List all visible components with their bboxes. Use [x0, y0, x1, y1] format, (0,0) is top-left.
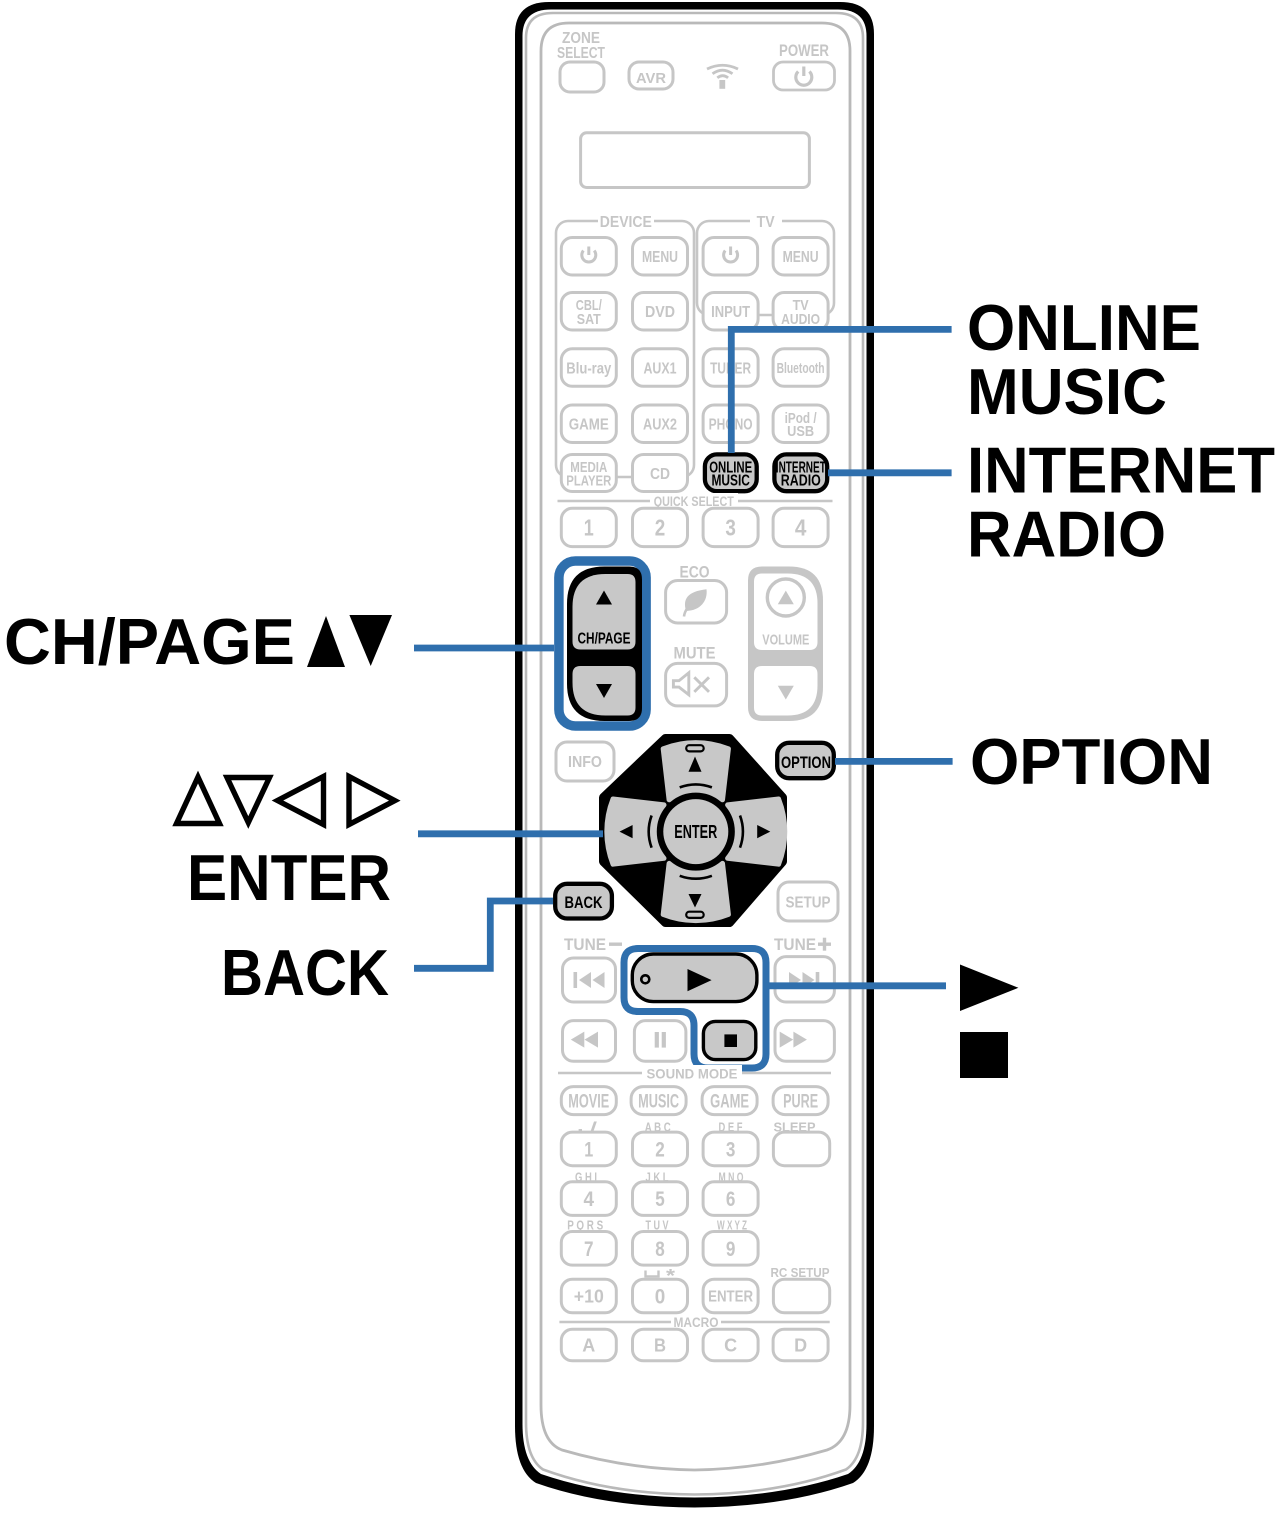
svg-text:0: 0 — [655, 1286, 666, 1309]
svg-text:+10: +10 — [574, 1287, 604, 1307]
svg-text:AUX2: AUX2 — [643, 417, 677, 434]
svg-text:ECO: ECO — [680, 563, 710, 582]
svg-text:SOUND MODE: SOUND MODE — [647, 1067, 738, 1082]
svg-text:CH/PAGE: CH/PAGE — [578, 630, 631, 647]
svg-text:TUNE: TUNE — [774, 935, 816, 954]
svg-text:8: 8 — [655, 1238, 665, 1261]
svg-text:QUICK SELECT: QUICK SELECT — [654, 494, 735, 509]
svg-text:3: 3 — [725, 515, 736, 541]
svg-text:MUSIC: MUSIC — [967, 356, 1167, 428]
svg-text:CD: CD — [650, 466, 670, 483]
svg-text:RADIO: RADIO — [967, 499, 1166, 571]
svg-text:3: 3 — [726, 1139, 736, 1162]
svg-text:POWER: POWER — [779, 41, 829, 60]
svg-text:B: B — [654, 1336, 666, 1356]
svg-text:MUTE: MUTE — [674, 644, 716, 663]
svg-text:RADIO: RADIO — [781, 473, 821, 490]
svg-text:C: C — [724, 1336, 737, 1356]
svg-text:SETUP: SETUP — [786, 895, 831, 912]
svg-text:TUNE: TUNE — [564, 935, 606, 954]
svg-text:MUSIC: MUSIC — [638, 1091, 679, 1112]
svg-text:INTERNET: INTERNET — [967, 435, 1275, 507]
svg-text:CH/PAGE: CH/PAGE — [4, 606, 295, 678]
svg-text:9: 9 — [726, 1238, 736, 1261]
svg-text:1: 1 — [584, 515, 594, 541]
svg-text:SAT: SAT — [577, 311, 601, 328]
svg-text:Bluetooth: Bluetooth — [777, 361, 825, 377]
svg-text:4: 4 — [795, 515, 807, 541]
svg-text:OPTION: OPTION — [970, 726, 1213, 798]
svg-text:ENTER: ENTER — [708, 1289, 753, 1306]
svg-text:BACK: BACK — [221, 937, 389, 1009]
svg-text:DEVICE: DEVICE — [600, 214, 652, 231]
svg-text:MENU: MENU — [642, 249, 678, 266]
svg-text:BACK: BACK — [565, 893, 604, 912]
svg-text:7: 7 — [584, 1238, 594, 1261]
svg-text:MACRO: MACRO — [674, 1315, 719, 1330]
svg-text:2: 2 — [655, 515, 666, 541]
svg-text:MOVIE: MOVIE — [568, 1091, 609, 1112]
svg-text:USB: USB — [787, 423, 814, 440]
svg-text:VOLUME: VOLUME — [762, 631, 809, 648]
svg-text:MUSIC: MUSIC — [711, 473, 750, 490]
svg-text:INPUT: INPUT — [711, 304, 750, 321]
svg-text:INFO: INFO — [568, 754, 602, 771]
svg-text:2: 2 — [655, 1139, 665, 1162]
svg-text:AVR: AVR — [636, 70, 666, 87]
svg-text:6: 6 — [726, 1188, 736, 1211]
svg-text:5: 5 — [655, 1188, 665, 1211]
svg-text:D: D — [794, 1336, 807, 1356]
svg-text:AUDIO: AUDIO — [781, 311, 820, 328]
svg-text:Blu-ray: Blu-ray — [566, 360, 611, 377]
svg-text:PLAYER: PLAYER — [566, 473, 611, 490]
svg-text:ENTER: ENTER — [187, 842, 391, 914]
svg-text:SELECT: SELECT — [557, 45, 605, 62]
svg-text:4: 4 — [584, 1188, 595, 1211]
svg-text:MENU: MENU — [783, 249, 819, 266]
svg-text:GAME: GAME — [710, 1091, 749, 1112]
svg-text:ENTER: ENTER — [674, 822, 717, 842]
svg-text:TV: TV — [757, 214, 775, 231]
svg-text:AUX1: AUX1 — [644, 360, 677, 377]
svg-text:GAME: GAME — [569, 417, 609, 434]
svg-text:1: 1 — [584, 1139, 593, 1162]
svg-text:PURE: PURE — [783, 1091, 818, 1112]
svg-text:OPTION: OPTION — [781, 753, 831, 772]
svg-text:ONLINE: ONLINE — [967, 292, 1201, 364]
svg-text:DVD: DVD — [645, 304, 675, 321]
svg-text:A: A — [582, 1336, 595, 1356]
